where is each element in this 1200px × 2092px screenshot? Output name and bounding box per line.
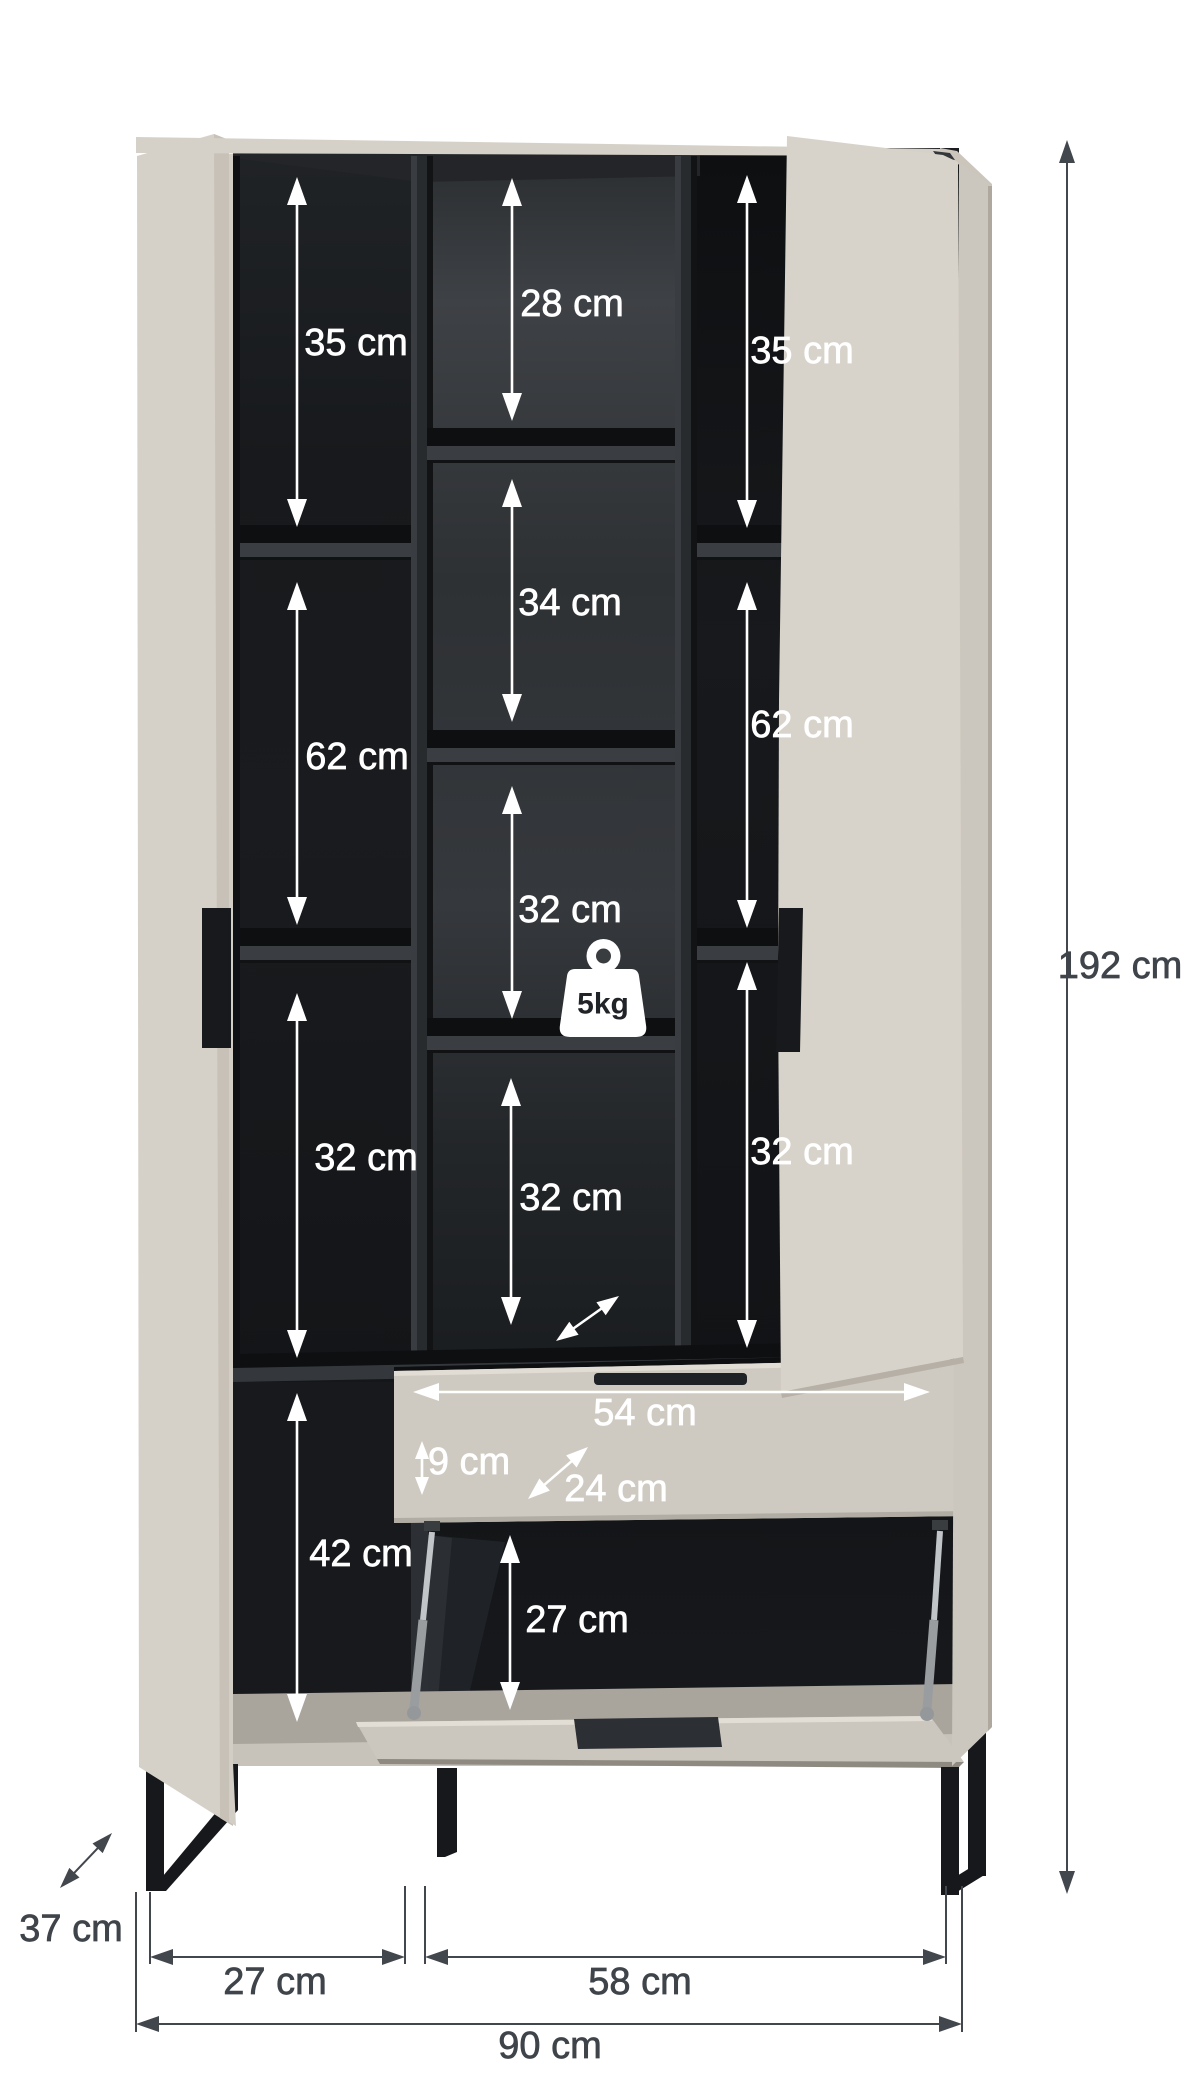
svg-text:58 cm: 58 cm [588, 1961, 691, 2003]
svg-text:42 cm: 42 cm [309, 1533, 412, 1575]
svg-text:32 cm: 32 cm [314, 1137, 417, 1179]
svg-text:27 cm: 27 cm [525, 1599, 628, 1641]
svg-text:62 cm: 62 cm [750, 704, 853, 746]
svg-text:28 cm: 28 cm [520, 283, 623, 325]
svg-text:54 cm: 54 cm [593, 1392, 696, 1434]
svg-text:37 cm: 37 cm [19, 1908, 122, 1950]
svg-text:90 cm: 90 cm [498, 2025, 601, 2067]
svg-text:24 cm: 24 cm [564, 1468, 667, 1510]
svg-text:5kg: 5kg [577, 988, 629, 1021]
svg-text:35 cm: 35 cm [750, 330, 853, 372]
svg-text:27 cm: 27 cm [223, 1961, 326, 2003]
svg-text:62 cm: 62 cm [305, 736, 408, 778]
svg-text:32 cm: 32 cm [518, 889, 621, 931]
svg-text:9 cm: 9 cm [428, 1441, 510, 1483]
svg-text:34 cm: 34 cm [518, 582, 621, 624]
svg-text:32 cm: 32 cm [750, 1131, 853, 1173]
svg-text:32 cm: 32 cm [519, 1177, 622, 1219]
svg-text:35 cm: 35 cm [304, 322, 407, 364]
svg-text:192 cm: 192 cm [1058, 945, 1183, 987]
